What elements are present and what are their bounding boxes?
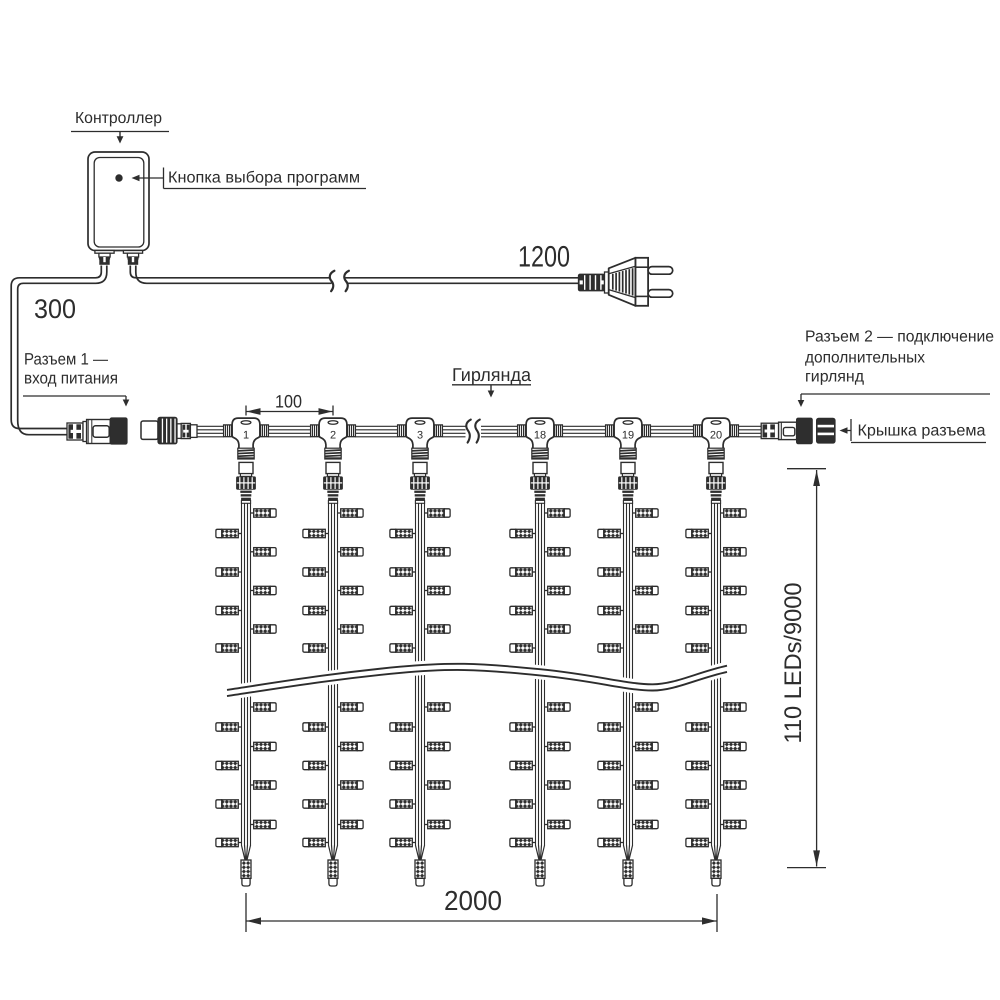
svg-text:2000: 2000 [444,885,502,916]
svg-text:300: 300 [34,294,76,324]
svg-text:1200: 1200 [518,241,570,274]
svg-text:18: 18 [534,430,546,442]
svg-text:20: 20 [710,430,722,442]
svg-text:дополнительных: дополнительных [805,350,925,367]
svg-text:Контроллер: Контроллер [75,110,162,127]
svg-text:100: 100 [275,392,302,412]
svg-text:Кнопка выбора программ: Кнопка выбора программ [168,170,360,187]
svg-text:Разъем 1 —: Разъем 1 — [24,351,108,369]
svg-text:гирлянд: гирлянд [805,369,865,386]
svg-text:вход питания: вход питания [24,370,118,388]
svg-text:2: 2 [330,430,336,442]
svg-text:19: 19 [622,430,634,442]
svg-text:Крышка разъема: Крышка разъема [858,423,986,440]
svg-text:Разъем 2 — подключение: Разъем 2 — подключение [805,329,994,346]
svg-text:110 LEDs/9000: 110 LEDs/9000 [780,583,807,744]
svg-text:Гирлянда: Гирлянда [452,364,532,385]
svg-text:1: 1 [243,430,249,442]
svg-text:3: 3 [417,430,423,442]
